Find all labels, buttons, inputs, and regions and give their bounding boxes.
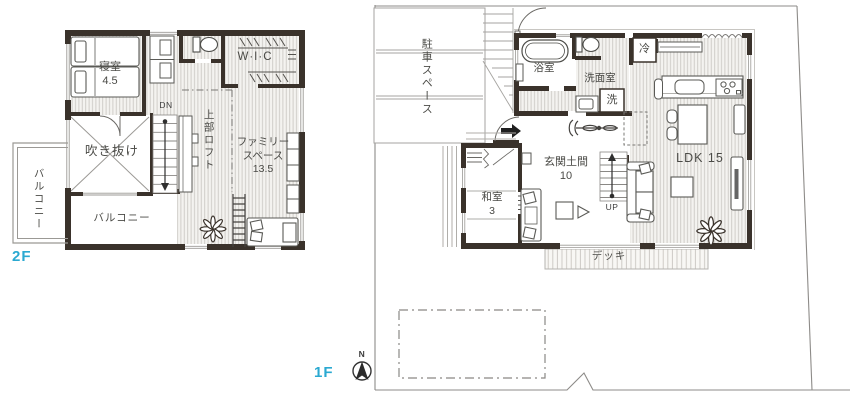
- sofa-icon: [627, 162, 654, 222]
- approach-steps: [483, 8, 513, 113]
- gate-door-arc: [515, 8, 546, 36]
- room-label-genkan: 玄関土間 10: [535, 155, 597, 184]
- room-label-balcony-bottom: バルコニー: [88, 212, 156, 226]
- bath-counter-icon: [516, 64, 523, 81]
- washroom-floor2: [519, 91, 576, 111]
- compass-n-label: N: [355, 349, 369, 360]
- room-label-balcony-left: バルコニー: [31, 157, 45, 241]
- plant-icon: [200, 216, 226, 242]
- stairs-dn-label: DN: [155, 100, 177, 111]
- stairs-down-icon: [153, 115, 177, 193]
- bicycle-icon: [569, 120, 618, 136]
- room-label-family-space: ファミリー スペース 13.5: [234, 136, 292, 177]
- fence-lines: [443, 146, 457, 247]
- fridge-label: 冷: [633, 42, 656, 56]
- toilet-icon: [576, 37, 599, 52]
- room-label-loft: 上部ロフト: [201, 103, 215, 178]
- plant-icon: [697, 217, 725, 245]
- sink-icon: [675, 80, 704, 94]
- chair-icon: [667, 127, 677, 140]
- room-label-bedroom: 寝室 4.5: [86, 60, 134, 89]
- floor1-label: 1F: [314, 363, 334, 383]
- dashed-plot-rect: [399, 310, 545, 378]
- washer-label: 洗: [600, 93, 624, 107]
- floorplan-page: 2F 寝室 4.5 W·I·C 吹き抜け 上部ロフト ファミリー スペース 13…: [0, 0, 850, 407]
- entrance-arrow-icon: [501, 124, 521, 138]
- stairs-up-icon: [600, 152, 627, 201]
- room-label-deck: デッキ: [580, 250, 638, 264]
- toilet-icon: [193, 37, 218, 52]
- bench-icon: [734, 105, 745, 134]
- bathtub-icon: [522, 40, 568, 62]
- compass-icon: [353, 362, 371, 381]
- kitchen-counter-icon: [662, 76, 743, 98]
- room-label-washroom: 洗面室: [571, 72, 629, 86]
- shoe-cabinet-icon: [522, 153, 531, 164]
- room-label-bath: 浴室: [523, 62, 565, 76]
- room-label-void: 吹き抜け: [78, 143, 146, 159]
- room-label-ldk: LDK 15: [660, 150, 740, 166]
- bedroom-door-arc: [100, 116, 120, 136]
- stairs-up-label: UP: [601, 202, 623, 213]
- table-icon: [671, 177, 693, 197]
- closet-icon: [467, 149, 514, 168]
- stove-icon: [716, 79, 742, 96]
- wardrobe-icon: [150, 36, 174, 83]
- floor2-label: 2F: [12, 247, 32, 267]
- genkan-table-icon: [556, 202, 589, 219]
- daybed-icon: [247, 218, 298, 246]
- room-label-wic: W·I·C: [226, 50, 284, 65]
- room-label-parking: 駐車スペース: [419, 14, 433, 139]
- room-label-washitsu: 和室 3: [465, 191, 519, 218]
- stool-icon: [655, 79, 663, 99]
- kitchen-shelf-icon: [658, 42, 702, 52]
- washbasin-icon: [576, 96, 598, 112]
- chair-icon: [667, 110, 677, 123]
- entrance-bench-icon: [521, 189, 541, 241]
